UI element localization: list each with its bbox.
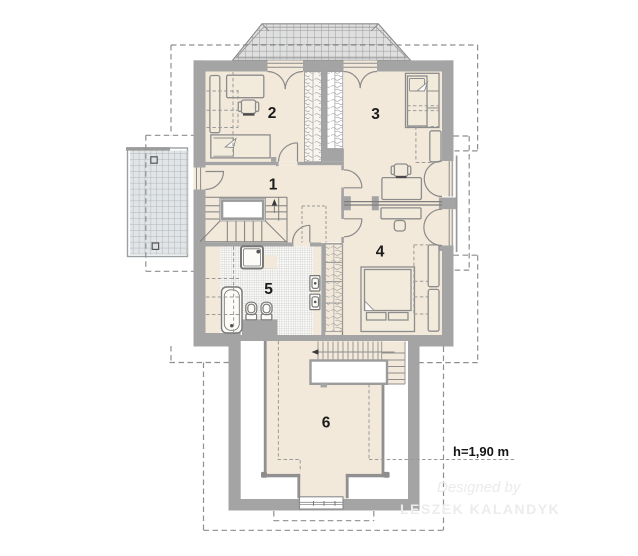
svg-text:Designed by: Designed by (437, 479, 522, 496)
svg-text:LESZEK KALANDYK: LESZEK KALANDYK (400, 501, 560, 517)
svg-text:6: 6 (322, 415, 331, 432)
svg-text:1: 1 (269, 177, 278, 194)
svg-text:2: 2 (268, 105, 277, 122)
svg-text:h=1,90 m: h=1,90 m (453, 444, 509, 459)
svg-text:3: 3 (371, 106, 380, 123)
svg-text:4: 4 (376, 244, 385, 261)
svg-text:5: 5 (264, 281, 273, 298)
